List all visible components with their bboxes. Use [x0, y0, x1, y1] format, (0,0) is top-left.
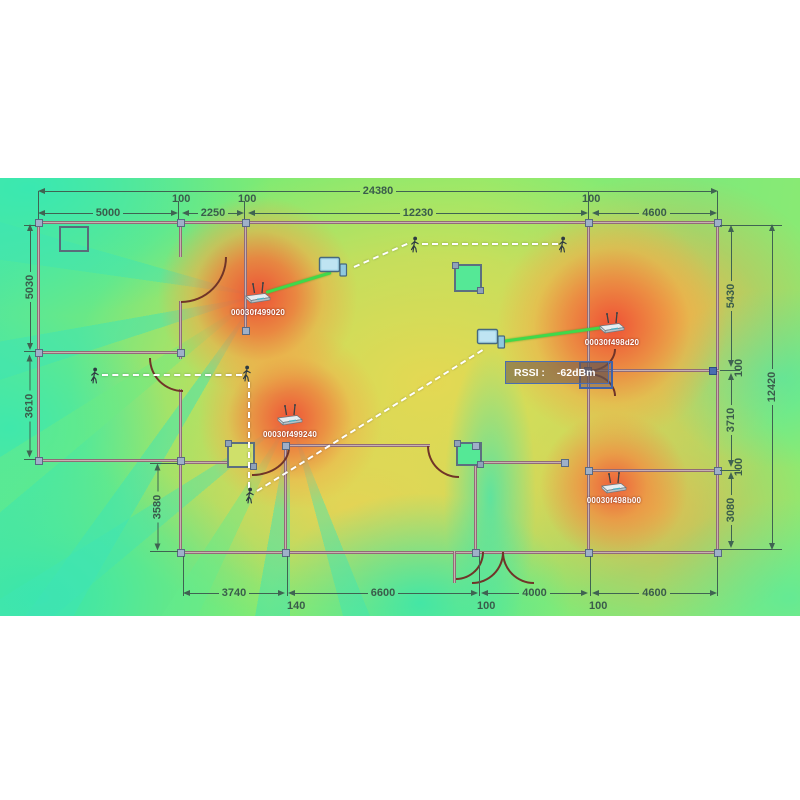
wall	[716, 221, 719, 553]
dim-right-total: 12420	[765, 224, 779, 550]
wall	[179, 389, 182, 462]
walk-path	[422, 243, 558, 245]
wall	[179, 462, 182, 554]
access-point-label: 00030f498d20	[564, 338, 660, 347]
person-walking-icon[interactable]	[88, 367, 101, 389]
dim-tag-100: 100	[238, 193, 256, 205]
wall-joint[interactable]	[177, 219, 185, 227]
walk-path	[102, 374, 242, 376]
wall-joint[interactable]	[242, 219, 250, 227]
wall	[38, 221, 720, 224]
laptop-icon[interactable]	[476, 327, 506, 356]
person-walking-icon[interactable]	[240, 365, 253, 387]
dim-right-5430: 5430	[724, 225, 738, 367]
shaft-box	[227, 442, 255, 468]
access-point-icon[interactable]	[276, 403, 304, 432]
person-walking-icon[interactable]	[408, 236, 421, 258]
dim-tag-100: 100	[477, 600, 495, 612]
dim-tag-100: 100	[733, 458, 745, 476]
dim-left-3610: 3610	[23, 355, 37, 458]
shaft-box	[454, 264, 482, 292]
dim-top-2250: 2250	[182, 206, 244, 220]
extension-line	[24, 459, 36, 460]
dim-tag-100: 100	[172, 193, 190, 205]
wall-joint[interactable]	[561, 459, 569, 467]
wall-joint[interactable]	[585, 219, 593, 227]
dim-tag-100: 100	[582, 193, 600, 205]
wall	[477, 461, 565, 464]
dim-tag-140: 140	[287, 600, 305, 612]
extension-line	[24, 351, 36, 352]
wifi-survey-canvas: 24380 5000 2250 12230 4600 100 100 100 5…	[0, 0, 800, 800]
wall	[180, 461, 230, 464]
wall-joint[interactable]	[242, 327, 250, 335]
wall-joint[interactable]	[585, 549, 593, 557]
wall-joint[interactable]	[177, 349, 185, 357]
wall	[37, 221, 40, 463]
dim-tag-100: 100	[733, 359, 745, 377]
dim-bottom-4000: 4000	[481, 586, 588, 600]
wall-joint[interactable]	[472, 442, 480, 450]
laptop-icon[interactable]	[318, 255, 348, 284]
dim-top-total: 24380	[38, 184, 718, 198]
dim-top-4600: 4600	[592, 206, 717, 220]
access-point-icon[interactable]	[598, 311, 626, 340]
access-point-label: 00030f499240	[242, 430, 338, 439]
access-point-label: 00030f498b00	[566, 496, 662, 505]
person-walking-icon[interactable]	[556, 236, 569, 258]
wall	[38, 351, 181, 354]
dim-bottom-6600: 6600	[288, 586, 478, 600]
dim-right-3710: 3710	[724, 373, 738, 467]
extension-line	[479, 556, 480, 596]
wall-joint[interactable]	[35, 457, 43, 465]
dim-left-5030: 5030	[23, 224, 37, 350]
dim-top-12230: 12230	[248, 206, 588, 220]
dim-bottom-3740: 3740	[183, 586, 285, 600]
wall-joint[interactable]	[177, 457, 185, 465]
dim-left-3580: 3580	[151, 464, 165, 551]
wall-joint[interactable]	[282, 442, 290, 450]
wall-joint[interactable]	[282, 549, 290, 557]
extension-line	[717, 556, 718, 596]
dim-bottom-4600: 4600	[592, 586, 717, 600]
rssi-label: RSSI :	[514, 367, 545, 379]
wall	[38, 459, 183, 462]
wall-joint[interactable]	[585, 467, 593, 475]
dim-right-3080: 3080	[724, 472, 738, 548]
window-fixture	[59, 226, 89, 252]
wall-joint[interactable]	[714, 467, 722, 475]
rssi-value: -62dBm	[557, 367, 596, 379]
dim-top-5000: 5000	[38, 206, 178, 220]
extension-line	[150, 551, 178, 552]
wall	[180, 551, 719, 554]
selection-handle[interactable]	[709, 367, 717, 375]
extension-line	[590, 556, 591, 596]
rssi-tooltip: RSSI : -62dBm	[505, 361, 609, 384]
wall	[284, 444, 430, 447]
person-walking-icon[interactable]	[243, 487, 256, 509]
access-point-icon[interactable]	[244, 281, 272, 310]
access-point-label: 00030f499020	[210, 308, 306, 317]
dim-tag-100: 100	[589, 600, 607, 612]
wall-joint[interactable]	[714, 549, 722, 557]
